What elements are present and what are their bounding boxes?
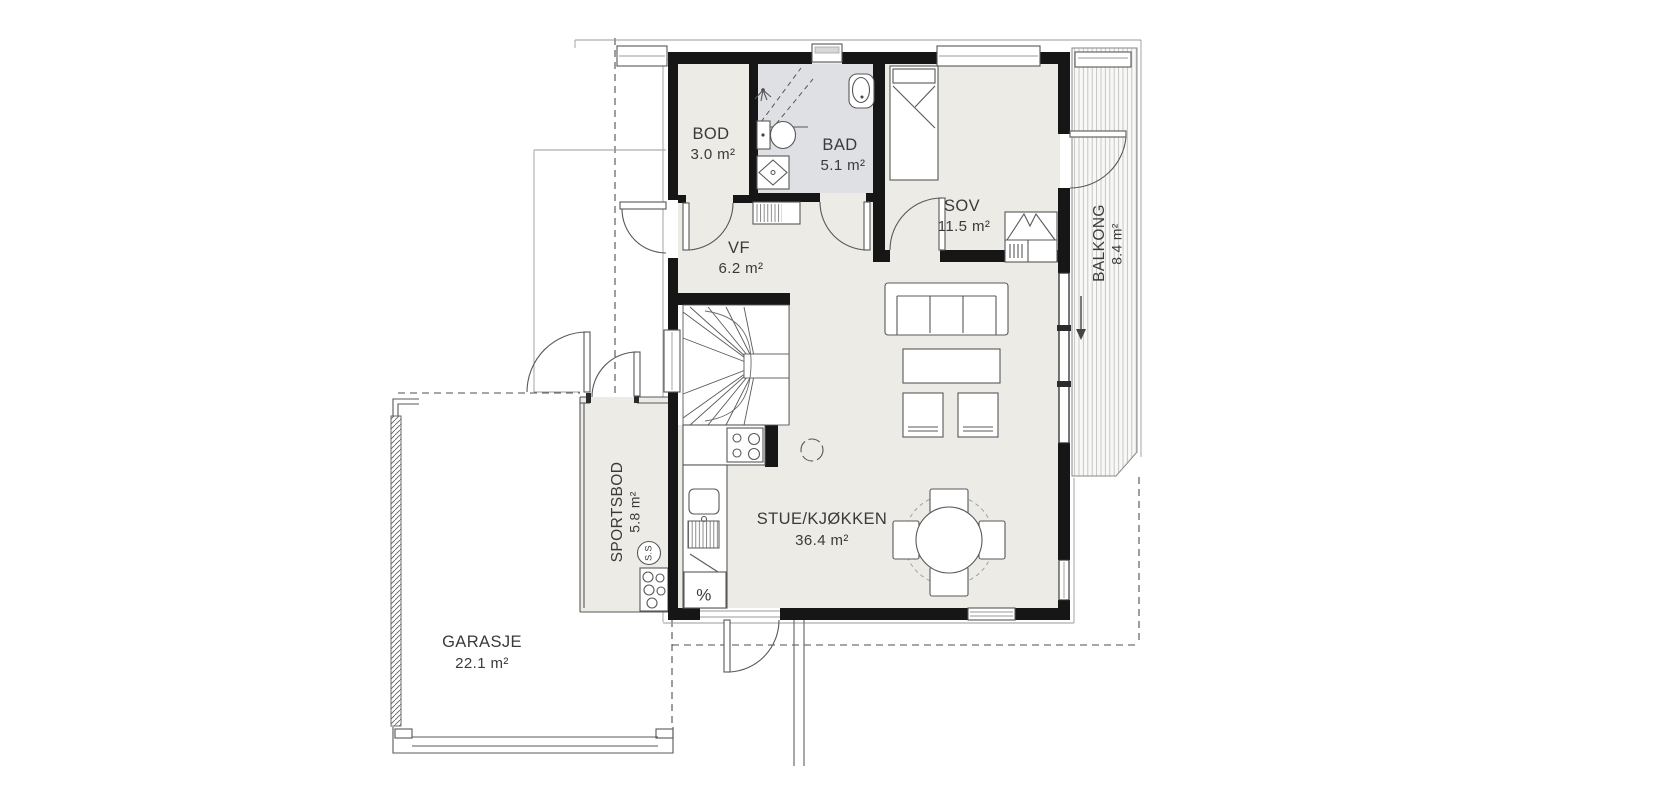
coffee-table-icon: [903, 349, 1000, 383]
room-label-sportsbod: SPORTSBOD: [609, 462, 626, 563]
water-heater-icon: [757, 156, 789, 189]
terrace-door: [700, 608, 780, 672]
tech-unit-icon: [640, 568, 668, 611]
room-area-bod: 3.0 m²: [691, 146, 736, 163]
window-right-lower: [1059, 560, 1069, 600]
room-area-balkong: 8.4 m²: [1110, 223, 1125, 265]
room-label-vf: VF: [728, 239, 750, 257]
room-area-sportsbod: 5.8 m²: [628, 491, 643, 533]
hall-cabinet-icon: [753, 202, 800, 224]
room-area-sov: 11.5 m²: [938, 218, 991, 235]
toilet-icon: [757, 121, 796, 149]
room-label-bod: BOD: [693, 125, 730, 143]
garage-door: [393, 727, 673, 753]
bed-icon: [890, 66, 938, 180]
fridge-symbol: %: [696, 585, 712, 604]
room-area-garasje: 22.1 m²: [455, 655, 509, 672]
armchair-icon: [903, 393, 943, 437]
room-label-balkong: BALKONG: [1091, 204, 1108, 282]
room-label-bad: BAD: [822, 136, 857, 154]
room-area-bad: 5.1 m²: [821, 157, 866, 174]
ss-circle-label: S.S: [643, 545, 653, 561]
dining-chair-icon: [979, 521, 1005, 559]
floor-plan-drawing: S.S: [0, 0, 1670, 800]
stove-icon: [727, 428, 763, 462]
bathroom-sink-icon: [849, 74, 874, 108]
room-label-garasje: GARASJE: [442, 633, 522, 651]
sofa-icon: [885, 283, 1008, 335]
garage-corner-marker: [393, 399, 419, 416]
sportsbod-door: [592, 352, 640, 397]
armchair-icon: [958, 393, 998, 437]
window-bottom: [968, 608, 1015, 620]
walkway: [794, 620, 804, 766]
balcony-beam: [1075, 52, 1131, 67]
floor-plan-canvas: S.S: [0, 0, 1670, 800]
window-top-bod: [617, 46, 667, 66]
entry-door: [620, 200, 678, 258]
room-label-stue: STUE/KJØKKEN: [757, 510, 887, 528]
porch-edge-lines: [534, 150, 666, 392]
window-vent-bad: [812, 44, 842, 62]
ss-circle-icon: S.S: [638, 542, 661, 565]
stairs: [683, 305, 789, 425]
glass-wall-balcony: [1057, 273, 1071, 443]
room-area-vf: 6.2 m²: [719, 260, 764, 277]
dishwasher-icon: [688, 521, 719, 548]
garage-wall-hatched: [391, 416, 401, 726]
window-stairs-left: [664, 330, 680, 392]
room-area-stue: 36.4 m²: [795, 532, 849, 549]
window-top-sov: [937, 46, 1040, 66]
fridge-icon: %: [684, 572, 726, 608]
dining-chair-icon: [893, 521, 919, 559]
porch-gate-door: [527, 332, 590, 392]
wardrobe-icon: [1005, 212, 1057, 262]
room-label-sov: SOV: [944, 197, 980, 215]
